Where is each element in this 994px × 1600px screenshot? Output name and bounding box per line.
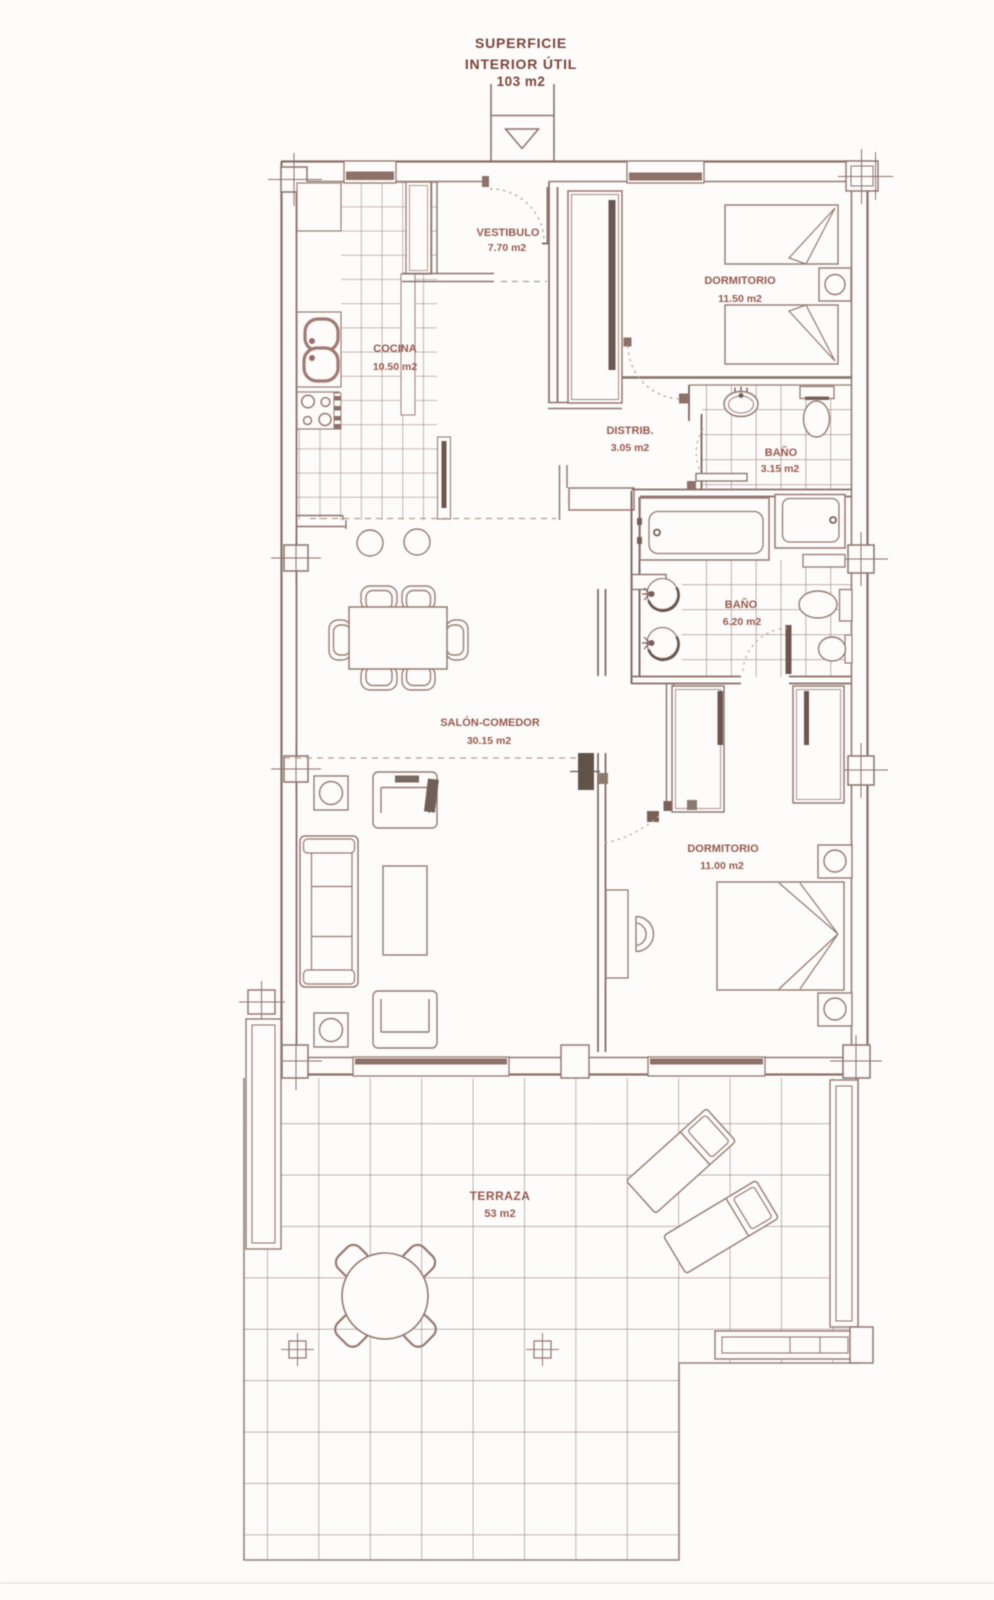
svg-text:DISTRIB.: DISTRIB. <box>606 425 653 437</box>
svg-text:11.00 m2: 11.00 m2 <box>700 860 744 872</box>
svg-text:3.05 m2: 3.05 m2 <box>611 442 650 454</box>
svg-text:BAÑO: BAÑO <box>765 446 798 459</box>
svg-text:7.70 m2: 7.70 m2 <box>488 242 527 254</box>
svg-text:6.20 m2: 6.20 m2 <box>723 616 762 628</box>
svg-text:3.15 m2: 3.15 m2 <box>761 463 800 475</box>
svg-text:SALÓN-COMEDOR: SALÓN-COMEDOR <box>440 716 540 729</box>
svg-text:INTERIOR ÚTIL: INTERIOR ÚTIL <box>465 55 577 72</box>
svg-text:COCINA: COCINA <box>373 343 416 355</box>
svg-text:DORMITORIO: DORMITORIO <box>687 843 759 855</box>
svg-text:11.50 m2: 11.50 m2 <box>718 293 762 305</box>
svg-text:103 m2: 103 m2 <box>497 74 546 89</box>
svg-text:BAÑO: BAÑO <box>725 598 758 611</box>
svg-text:53 m2: 53 m2 <box>484 1208 515 1220</box>
svg-text:TERRAZA: TERRAZA <box>470 1189 531 1203</box>
svg-text:30.15 m2: 30.15 m2 <box>467 735 512 747</box>
svg-text:10.50 m2: 10.50 m2 <box>373 361 418 373</box>
svg-text:SUPERFICIE: SUPERFICIE <box>475 35 567 51</box>
svg-text:VESTIBULO: VESTIBULO <box>477 227 540 239</box>
svg-text:DORMITORIO: DORMITORIO <box>704 275 776 287</box>
